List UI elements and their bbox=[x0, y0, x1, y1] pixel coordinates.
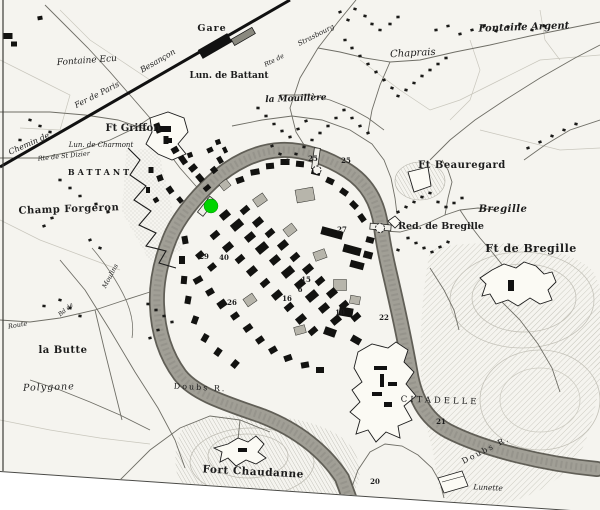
gate-symbol bbox=[376, 224, 385, 233]
gate-symbol bbox=[313, 166, 321, 174]
besancon-engraved-map[interactable]: GareBesançonFer de ParisChemin deRte de … bbox=[0, 0, 600, 510]
selected-location-marker[interactable] bbox=[204, 199, 218, 213]
map-viewport[interactable]: { "map": { "kind": "engraved-city-map", … bbox=[0, 0, 600, 510]
